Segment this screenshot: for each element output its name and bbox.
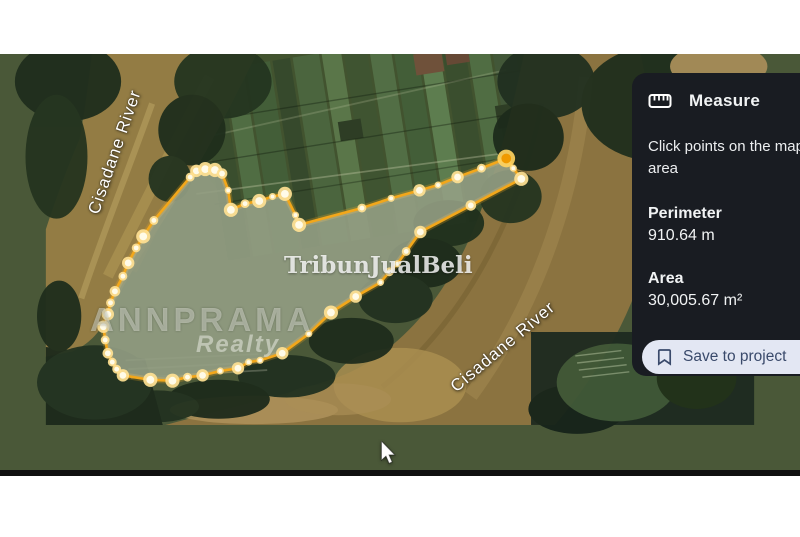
watermark-listing: TribunJualBeli: [284, 252, 473, 279]
satellite-map[interactable]: Cisadane River Cisadane River ANNPRAMA R…: [0, 54, 800, 471]
area-label: Area: [648, 270, 800, 288]
bookmark-icon: [656, 348, 673, 366]
area-value: 30,005.67 m²: [648, 292, 800, 310]
screen-bottom-edge: [0, 470, 800, 476]
panel-title: Measure: [689, 91, 760, 111]
panel-instruction-line1: Click points on the map: [648, 136, 800, 158]
perimeter-value: 910.64 m: [648, 227, 800, 245]
ruler-icon: [648, 92, 672, 110]
measure-panel: Measure Click points on the map area Per…: [632, 73, 800, 376]
save-to-project-button[interactable]: Save to project: [642, 340, 800, 374]
perimeter-label: Perimeter: [648, 205, 800, 223]
my-location-crosshair-icon[interactable]: [766, 470, 796, 471]
watermark-brand-sub: Realty: [196, 331, 280, 359]
panel-instruction-line2: area: [648, 158, 800, 180]
screenshot-photo: Cisadane River Cisadane River ANNPRAMA R…: [0, 0, 800, 537]
panel-instruction: Click points on the map area: [648, 136, 800, 180]
measure-panel-header: Measure: [648, 91, 800, 111]
save-to-project-label: Save to project: [683, 348, 786, 366]
